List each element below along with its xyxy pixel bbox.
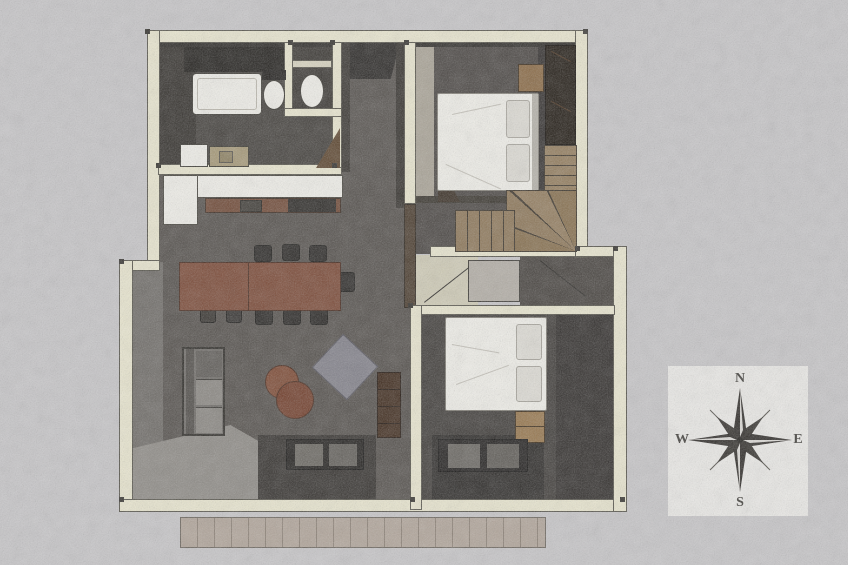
compass-west-label: W <box>675 432 689 448</box>
wall-post <box>583 29 588 34</box>
wall-post <box>332 163 337 168</box>
bath-wall-shadow <box>342 42 350 172</box>
outer-wall-right-lower <box>613 246 627 512</box>
sofa <box>182 347 225 436</box>
bookshelf <box>377 372 401 438</box>
pillow <box>516 366 542 402</box>
wall-post <box>404 40 409 45</box>
bedroom2-floor-dark <box>556 312 614 502</box>
nightstand-top-line <box>516 426 544 427</box>
dining-table <box>179 262 341 311</box>
bathroom-sink <box>180 144 208 167</box>
outer-wall-bottom <box>119 499 627 512</box>
landing-closet-door <box>468 260 520 302</box>
bathroom-vanity <box>209 146 249 167</box>
vanity-basin <box>219 151 233 163</box>
spine-wall <box>404 204 416 308</box>
shelf-line <box>378 406 400 407</box>
sofa-cushion <box>196 379 222 405</box>
nightstand <box>518 64 544 92</box>
wc-wall-bottom <box>284 108 342 117</box>
wall-post <box>330 40 335 45</box>
compass-east-label: E <box>793 432 802 448</box>
shelf-line <box>378 389 400 390</box>
bed <box>437 93 539 191</box>
wardrobe-grain <box>551 51 571 62</box>
kitchen-counter-return <box>163 175 198 225</box>
wall-post <box>156 163 161 168</box>
bathtub <box>192 73 262 115</box>
wall-post <box>620 497 625 502</box>
wc-toilet-bowl <box>300 74 324 108</box>
duvet-fold <box>456 365 509 385</box>
wardrobe-grain <box>551 101 571 112</box>
duvet-fold <box>452 344 499 353</box>
pillow <box>516 324 542 360</box>
pillow <box>506 144 530 182</box>
wall-post <box>288 40 293 45</box>
duvet-fold <box>452 104 501 115</box>
shelf-line <box>378 423 400 424</box>
sofa-cushion <box>196 407 222 433</box>
dining-chair <box>282 244 300 261</box>
sofa-seat <box>196 351 222 377</box>
mat-panel <box>487 444 519 468</box>
dining-chair <box>283 309 301 325</box>
dining-table-seam <box>248 263 249 310</box>
toilet-tank <box>262 70 286 80</box>
wardrobe <box>545 45 576 145</box>
bathtub-inner-line <box>197 78 257 110</box>
mat-panel <box>329 444 357 466</box>
wall-post <box>119 497 124 502</box>
duvet-fold <box>446 164 501 189</box>
kitchen-sink <box>240 200 262 212</box>
outer-wall-top <box>147 30 588 43</box>
floor-plan-sketch: N E S W <box>0 0 848 565</box>
wall-post <box>119 259 124 264</box>
bedroom1-lit-strip <box>416 44 434 202</box>
stove <box>288 199 336 212</box>
bedroom2-wall-top <box>410 305 615 315</box>
entry-mat-bedroom2 <box>438 439 528 472</box>
outer-wall-left-lower <box>119 260 133 512</box>
dining-chair <box>339 272 355 292</box>
entry-mat-living <box>286 439 364 470</box>
wall-post <box>575 246 580 251</box>
compass-rose: N E S W <box>668 366 808 516</box>
mat-panel <box>448 444 480 468</box>
staircase-lower-flight <box>455 210 515 252</box>
staircase-winder <box>506 190 577 252</box>
bedroom2-wall-left <box>410 305 422 510</box>
deck <box>180 517 546 548</box>
compass-north-label: N <box>735 371 745 387</box>
toilet-bowl <box>263 80 285 110</box>
bed <box>445 317 547 411</box>
outer-wall-left-upper <box>147 30 160 270</box>
wall-post <box>410 497 415 502</box>
dining-chair <box>254 245 272 262</box>
ottoman <box>276 381 314 419</box>
dining-chair <box>309 245 327 262</box>
compass-star-icon <box>668 366 808 516</box>
dining-chair <box>310 309 328 325</box>
wall-post <box>145 29 150 34</box>
mat-panel <box>295 444 323 466</box>
sofa-armrest <box>186 349 194 434</box>
wall-post <box>613 246 618 251</box>
compass-south-label: S <box>736 495 744 511</box>
pillow <box>506 100 530 138</box>
dining-chair <box>255 309 273 325</box>
bedroom1-wall-left <box>404 42 416 204</box>
wc-shelf <box>292 60 332 68</box>
wall-post <box>408 303 413 308</box>
bed-headboard <box>532 94 538 190</box>
